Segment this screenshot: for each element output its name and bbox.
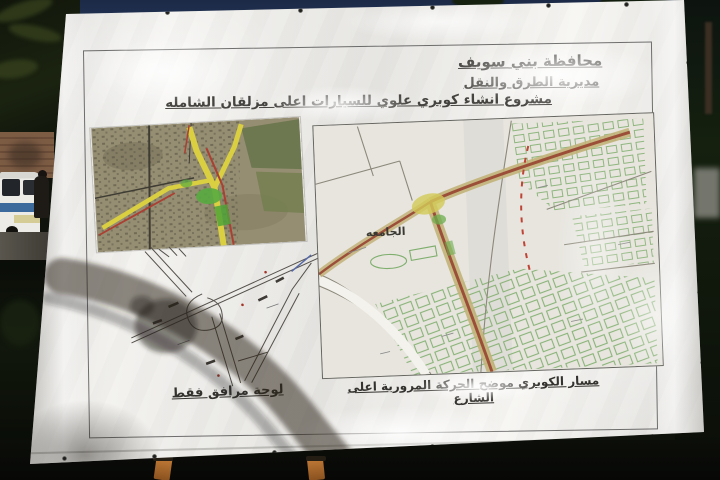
- tree-trunk: [705, 22, 712, 114]
- photo-of-project-banner: محافظة بني سويف مديرية الطرق والنقل مشرو…: [0, 0, 720, 480]
- banner-grommet: [430, 5, 435, 10]
- bush: [0, 300, 40, 346]
- person-silhouette: [34, 176, 49, 218]
- aerial-photo-map: [90, 117, 306, 252]
- banner-grommet: [546, 3, 551, 8]
- gravel-rubble: [468, 450, 720, 480]
- roads-directorate-name: مديرية الطرق والنقل: [426, 74, 636, 91]
- banner-grommet: [62, 456, 67, 461]
- project-banner: محافظة بني سويف مديرية الطرق والنقل مشرو…: [0, 0, 720, 480]
- distant-object: [694, 168, 720, 218]
- van-windshield: [2, 179, 20, 196]
- banner-grommet: [650, 434, 655, 439]
- banner-grommet: [624, 2, 629, 7]
- governorate-name: محافظة بني سويف: [416, 51, 644, 71]
- wall-stain: [8, 142, 42, 168]
- easel-clamp: [306, 456, 326, 461]
- banner-grommet: [298, 8, 303, 13]
